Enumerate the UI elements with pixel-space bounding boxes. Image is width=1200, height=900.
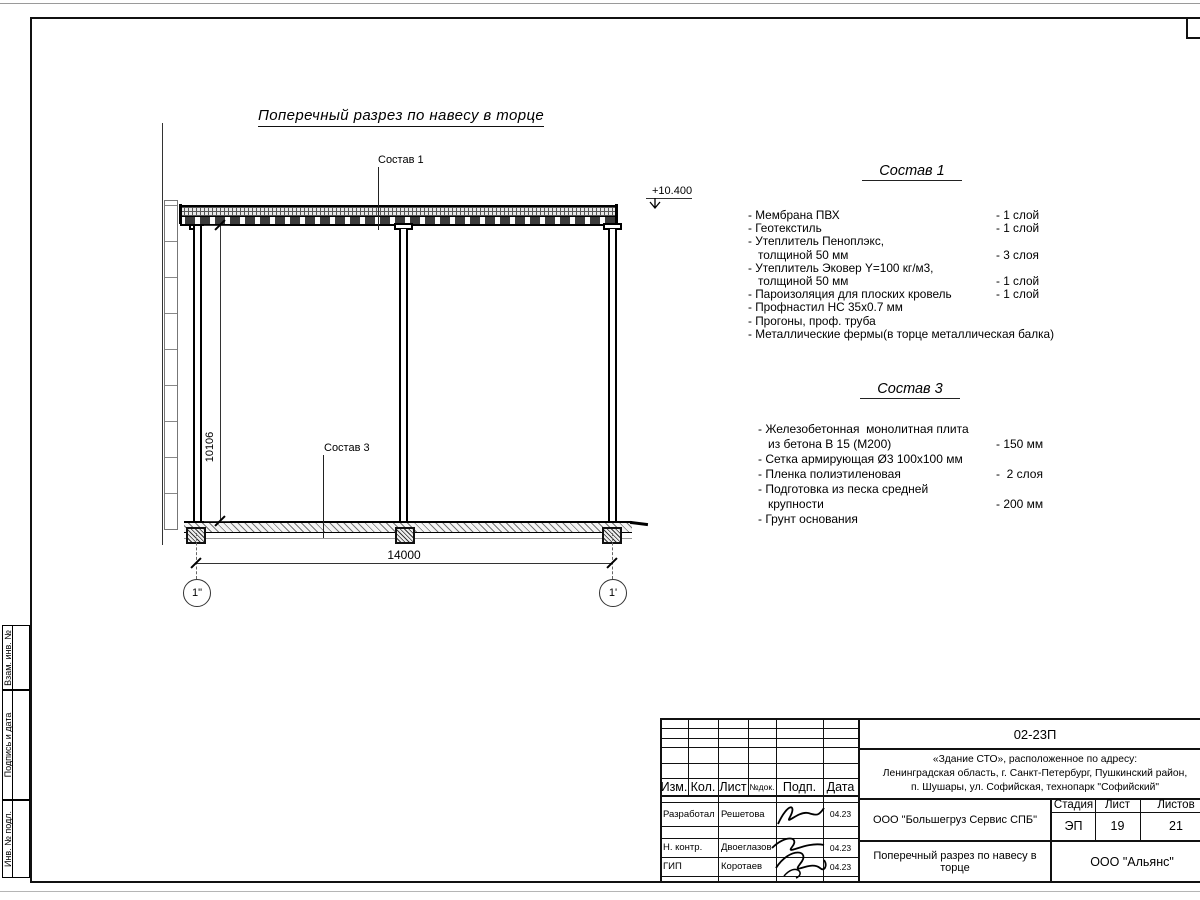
spec-item: крупности- 200 мм (758, 497, 1128, 512)
axis-label-left: 1" (192, 587, 202, 599)
spec-item: - Железобетонная монолитная плита (758, 422, 1128, 437)
role-nkontr: Н. контр. (660, 838, 718, 857)
building-edge-line (162, 123, 163, 545)
frame-stamp-cell: Взам. инв. № (2, 625, 30, 690)
spec-item: толщиной 50 мм- 3 слоя (748, 248, 1128, 261)
axis-bubble-left: 1" (183, 579, 211, 607)
dim-width-line (196, 563, 613, 564)
rev-col-kol: Кол. (688, 778, 718, 795)
paper-edge-bottom (0, 891, 1200, 892)
column-left (193, 226, 202, 522)
spec-item: - Утеплитель Эковер Y=100 кг/м3, (748, 261, 1128, 274)
foundation-pad-middle (395, 527, 415, 544)
stamp-label: Взам. инв. № (3, 630, 13, 686)
axis-line-left (196, 533, 197, 579)
stage-label: Стадия (1052, 798, 1095, 812)
sheets-value: 21 (1140, 812, 1200, 840)
elevation-arrow-icon (646, 198, 664, 212)
spec-item: - Геотекстиль- 1 слой (748, 221, 1128, 234)
elevation-value: +10.400 (652, 185, 692, 197)
axis-label-right: 1' (609, 587, 617, 599)
sostav3-list: - Железобетонная монолитная плита из бет… (758, 422, 1128, 527)
rev-col-list: Лист (718, 778, 748, 795)
frame-stamp-cell: Подпись и дата (2, 690, 30, 800)
doc-code: 02-23П (860, 720, 1200, 748)
drawing-sheet: Взам. инв. № Подпись и дата Инв. № подл.… (0, 0, 1200, 900)
stage-value: ЭП (1052, 812, 1095, 840)
sheet-label: Лист (1095, 798, 1140, 812)
sheet-value: 19 (1095, 812, 1140, 840)
callout-sostav3: Состав 3 (324, 442, 370, 454)
frame-top-border (30, 17, 1200, 19)
address-line: п. Шушары, ул. Софийская, технопарк "Соф… (911, 781, 1159, 795)
address-line: Ленинградская область, г. Санкт-Петербур… (883, 767, 1187, 781)
title-block: Изм. Кол. Лист №док. Подп. Дата Разработ… (660, 718, 1200, 883)
rev-col-ndok: №док. (748, 778, 776, 795)
signature-razrabotal (774, 798, 826, 830)
spec-item: - Подготовка из песка средней (758, 482, 1128, 497)
sostav3-heading: Состав 3 (860, 381, 960, 399)
roof-insulation-layer (180, 207, 618, 217)
role-gip: ГИП (660, 857, 718, 876)
project-address: «Здание СТО», расположенное по адресу: Л… (860, 750, 1200, 798)
axis-bubble-right: 1' (599, 579, 627, 607)
column-middle (399, 229, 408, 522)
spec-item: - Пароизоляция для плоских кровель- 1 сл… (748, 287, 1128, 300)
sostav1-list: - Мембрана ПВХ- 1 слой - Геотекстиль- 1 … (748, 208, 1128, 340)
callout-sostav1: Состав 1 (378, 154, 424, 166)
contractor-name: ООО "Большегруз Сервис СПБ" (860, 800, 1050, 840)
roof-end-cap-left (179, 204, 182, 224)
paper-edge-top (0, 3, 1200, 4)
rev-col-data: Дата (823, 778, 858, 795)
spec-item: - Профнастил НС 35х0.7 мм (748, 300, 1128, 313)
stamp-label: Подпись и дата (3, 713, 13, 778)
spec-item: - Сетка армирующая Ø3 100х100 мм (758, 452, 1128, 467)
rev-col-podp: Подп. (776, 778, 823, 795)
company-name: ООО "Альянс" (1052, 842, 1200, 881)
callout-sostav3-leader (323, 455, 324, 538)
view-title: Поперечный разрез по навесу в торце (258, 107, 544, 127)
dim-height-value: 10106 (204, 405, 216, 489)
frame-corner-box (1186, 17, 1200, 39)
signature-nkontr-gip (766, 832, 830, 882)
spec-item: - Утеплитель Пеноплэкс, (748, 234, 1128, 247)
axis-line-right (612, 533, 613, 579)
sheet-doc-title: Поперечный разрез по навесу в торце (860, 842, 1050, 881)
role-razrabotal: Разработал (660, 802, 718, 826)
spec-item: - Пленка полиэтиленовая- 2 слоя (758, 467, 1128, 482)
spec-item: из бетона В 15 (М200)- 150 мм (758, 437, 1128, 452)
end-wall-strip (164, 200, 178, 530)
spec-item: - Металлические фермы(в торце металличес… (748, 327, 1128, 340)
stamp-label: Инв. № подл. (3, 811, 13, 867)
frame-left-border (30, 17, 32, 883)
rev-col-izm: Изм. (660, 778, 688, 795)
spec-item: толщиной 50 мм- 1 слой (748, 274, 1128, 287)
date-razrabotal: 04.23 (823, 802, 858, 826)
ground-line-tail (630, 521, 648, 526)
roof-end-cap-right (615, 204, 618, 224)
spec-item: - Прогоны, проф. труба (748, 314, 1128, 327)
sheets-label: Листов (1140, 798, 1200, 812)
address-line: «Здание СТО», расположенное по адресу: (933, 753, 1137, 767)
callout-sostav1-leader (378, 167, 379, 230)
frame-stamp-cell: Инв. № подл. (2, 800, 30, 878)
dim-height-line (220, 225, 221, 521)
dim-width-value: 14000 (374, 548, 434, 562)
column-right (608, 229, 617, 522)
spec-item: - Грунт основания (758, 512, 1128, 527)
name-razrabotal: Решетова (718, 802, 776, 826)
sostav1-heading: Состав 1 (862, 163, 962, 181)
spec-item: - Мембрана ПВХ- 1 слой (748, 208, 1128, 221)
